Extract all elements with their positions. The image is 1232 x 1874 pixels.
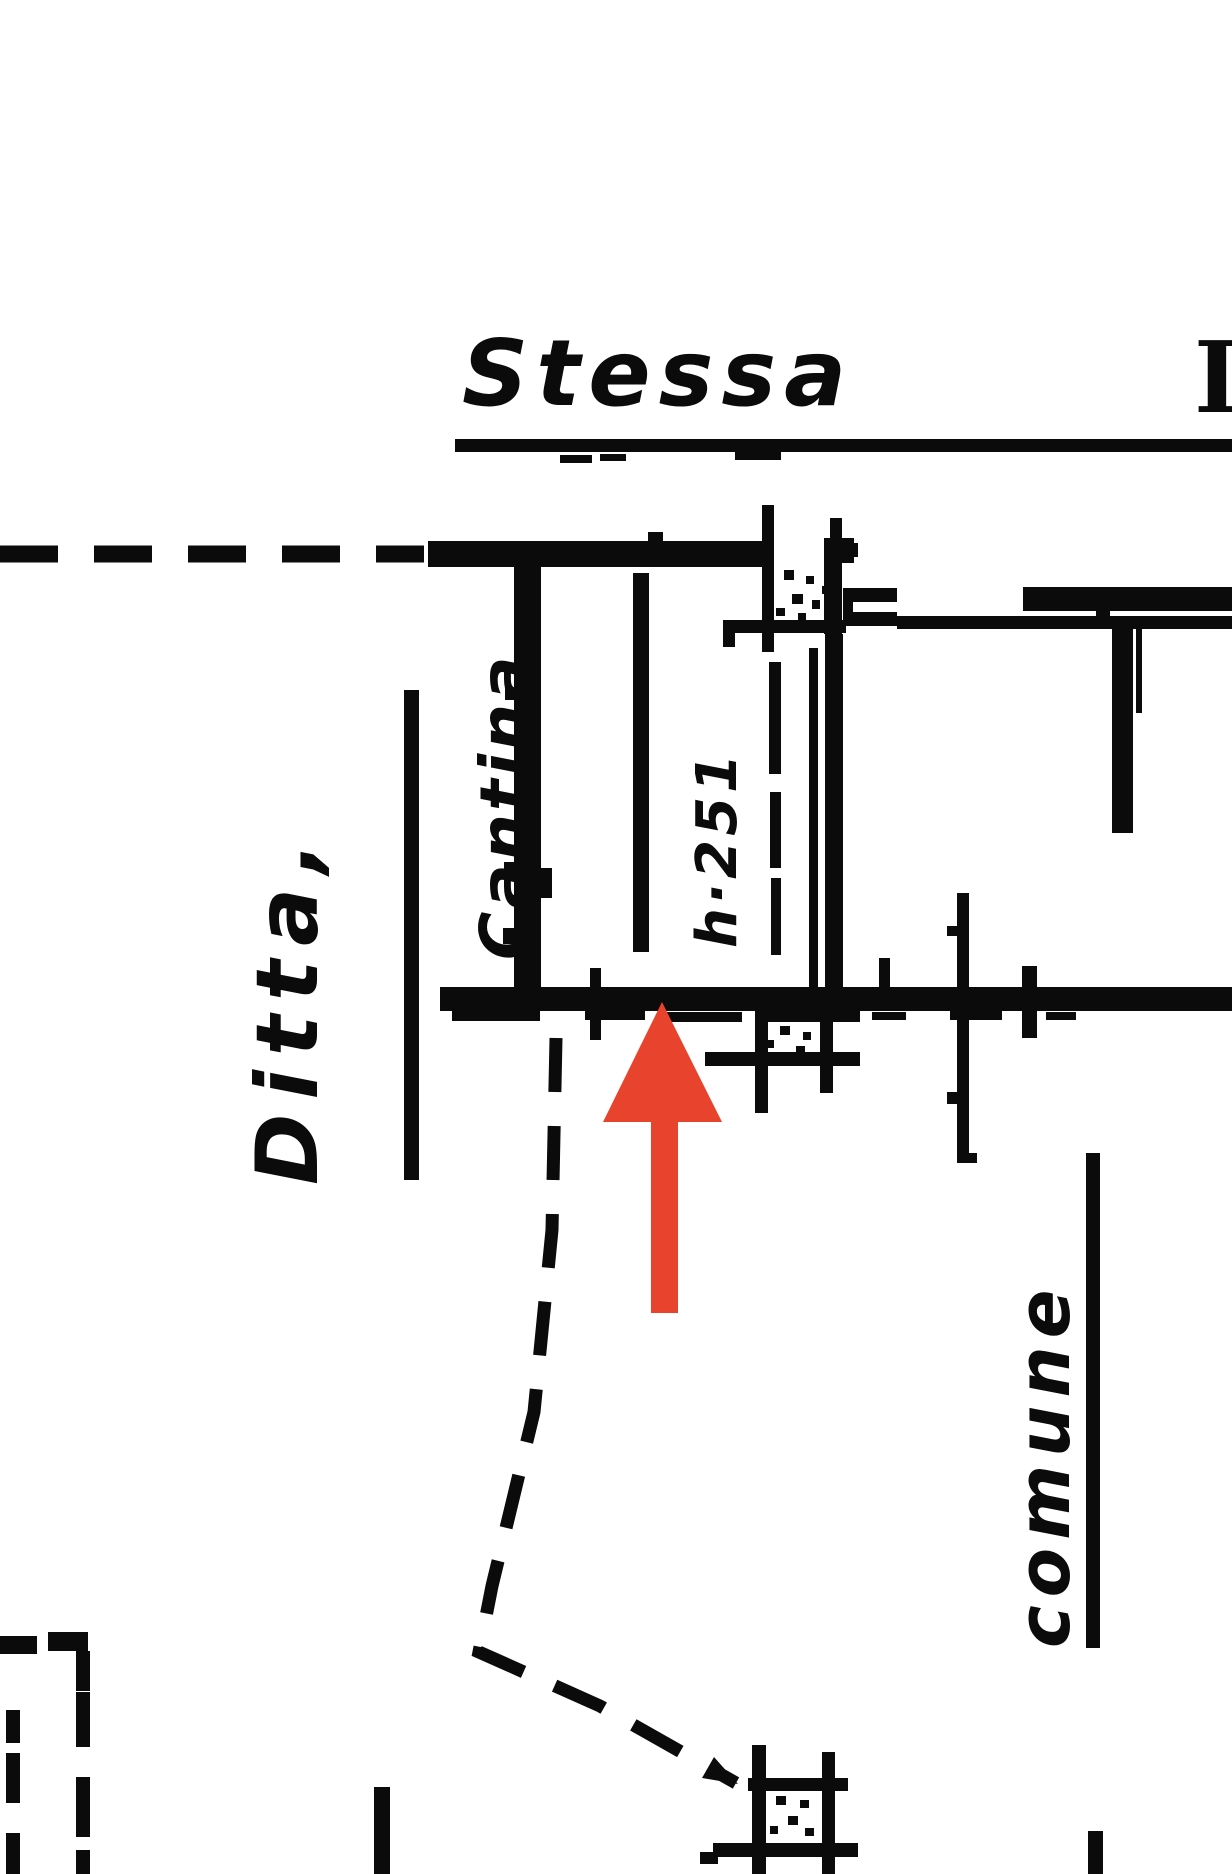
height-note-underline [769,662,781,955]
dashed-corner-bottom-left [0,1632,90,1874]
partial-word-underlines [374,1787,1103,1874]
red-arrow-stem [651,1122,678,1313]
owner-label: Ditta, [245,640,331,1185]
partial-word-bottom-left: a [304,1787,378,1874]
height-note-label: h·251 [690,653,746,948]
hatched-pier-bottom [700,1745,858,1874]
room-partition-lines [809,634,843,996]
dashed-boundary-path [479,1038,738,1784]
comune-underline [1086,1153,1100,1648]
scanned-floor-plan: Stessa I Ditta, Cantina h·251 comune a e [0,0,1232,1874]
survey-cross-line [947,893,977,1163]
partial-word-bottom-right: e [1012,1802,1086,1874]
street-title-label: Stessa [462,328,854,420]
cantina-underline [633,573,649,952]
boundary-note-label: comune [1008,1153,1080,1648]
ditta-underline [404,690,419,1180]
street-title-partial-letter: I [1194,330,1232,428]
right-wall-structure [824,518,1232,833]
title-underline [455,439,1232,463]
room-label: Cantina [472,572,538,960]
red-pointer-arrow [603,1002,722,1313]
